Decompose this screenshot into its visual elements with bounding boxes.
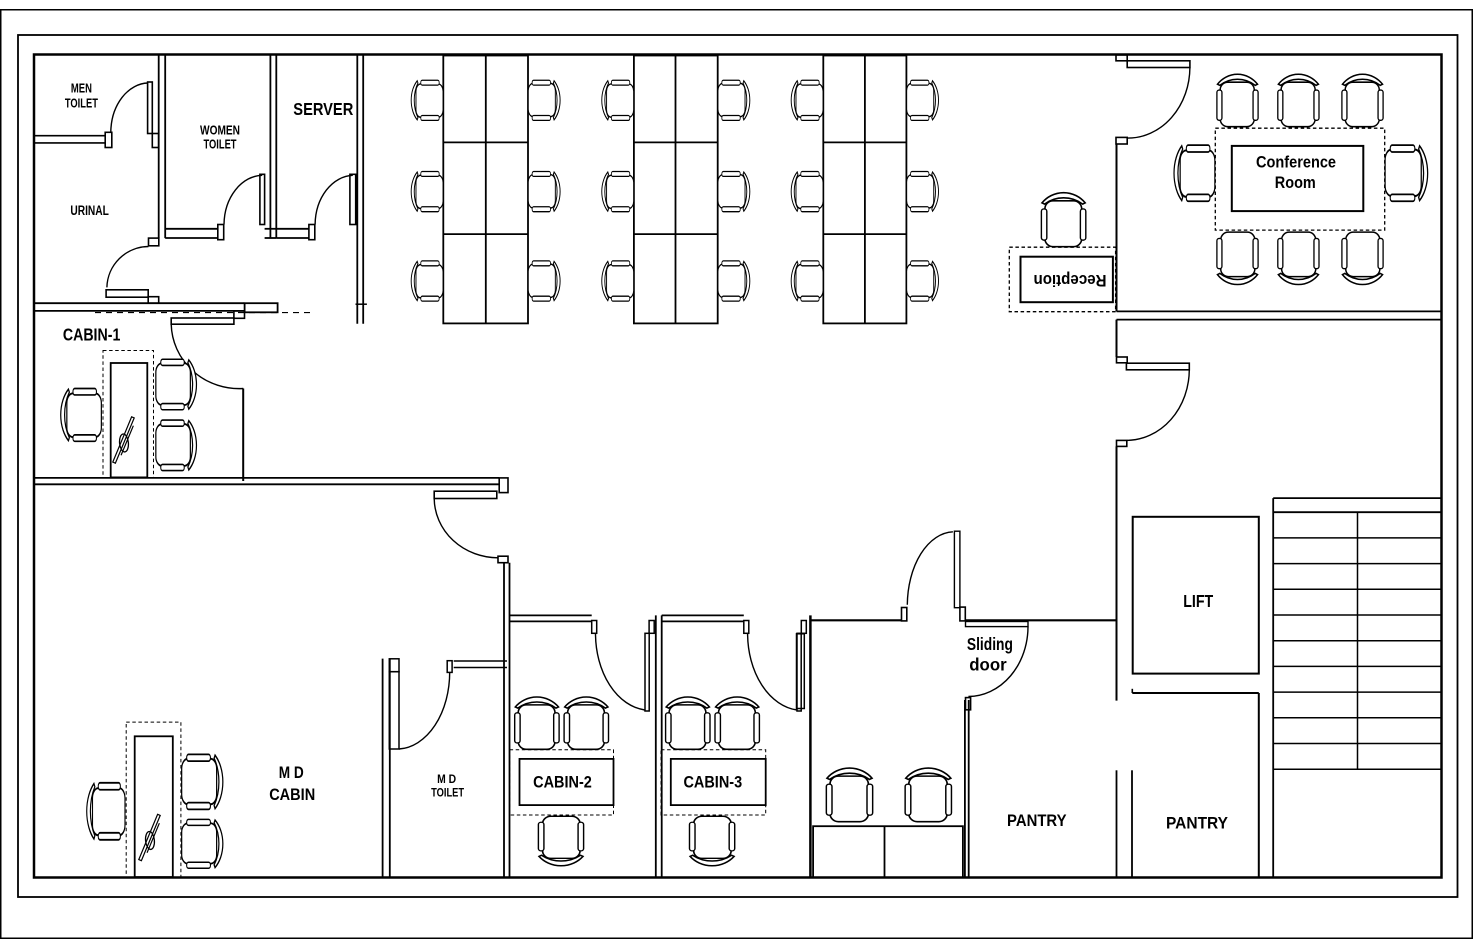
svg-text:TOILET: TOILET	[431, 788, 464, 800]
svg-text:CABIN: CABIN	[269, 785, 315, 804]
svg-text:SERVER: SERVER	[293, 99, 353, 119]
svg-text:CABIN-1: CABIN-1	[63, 324, 121, 344]
svg-text:WOMEN: WOMEN	[200, 123, 240, 138]
svg-text:door: door	[969, 654, 1007, 674]
svg-text:Reception: Reception	[1034, 271, 1107, 290]
svg-text:M D: M D	[437, 774, 456, 786]
svg-text:TOILET: TOILET	[204, 136, 237, 151]
svg-text:Room: Room	[1275, 173, 1316, 192]
svg-text:URINAL: URINAL	[70, 203, 109, 218]
svg-text:PANTRY: PANTRY	[1166, 814, 1228, 832]
svg-text:CABIN-2: CABIN-2	[533, 774, 592, 792]
svg-text:TOILET: TOILET	[65, 95, 98, 110]
svg-text:Sliding: Sliding	[967, 634, 1013, 654]
svg-text:PANTRY: PANTRY	[1007, 812, 1067, 830]
svg-text:Conference: Conference	[1256, 153, 1336, 172]
svg-text:M D: M D	[279, 763, 304, 782]
svg-text:MEN: MEN	[71, 80, 92, 95]
svg-text:LIFT: LIFT	[1183, 591, 1213, 611]
svg-text:CABIN-3: CABIN-3	[683, 774, 742, 792]
